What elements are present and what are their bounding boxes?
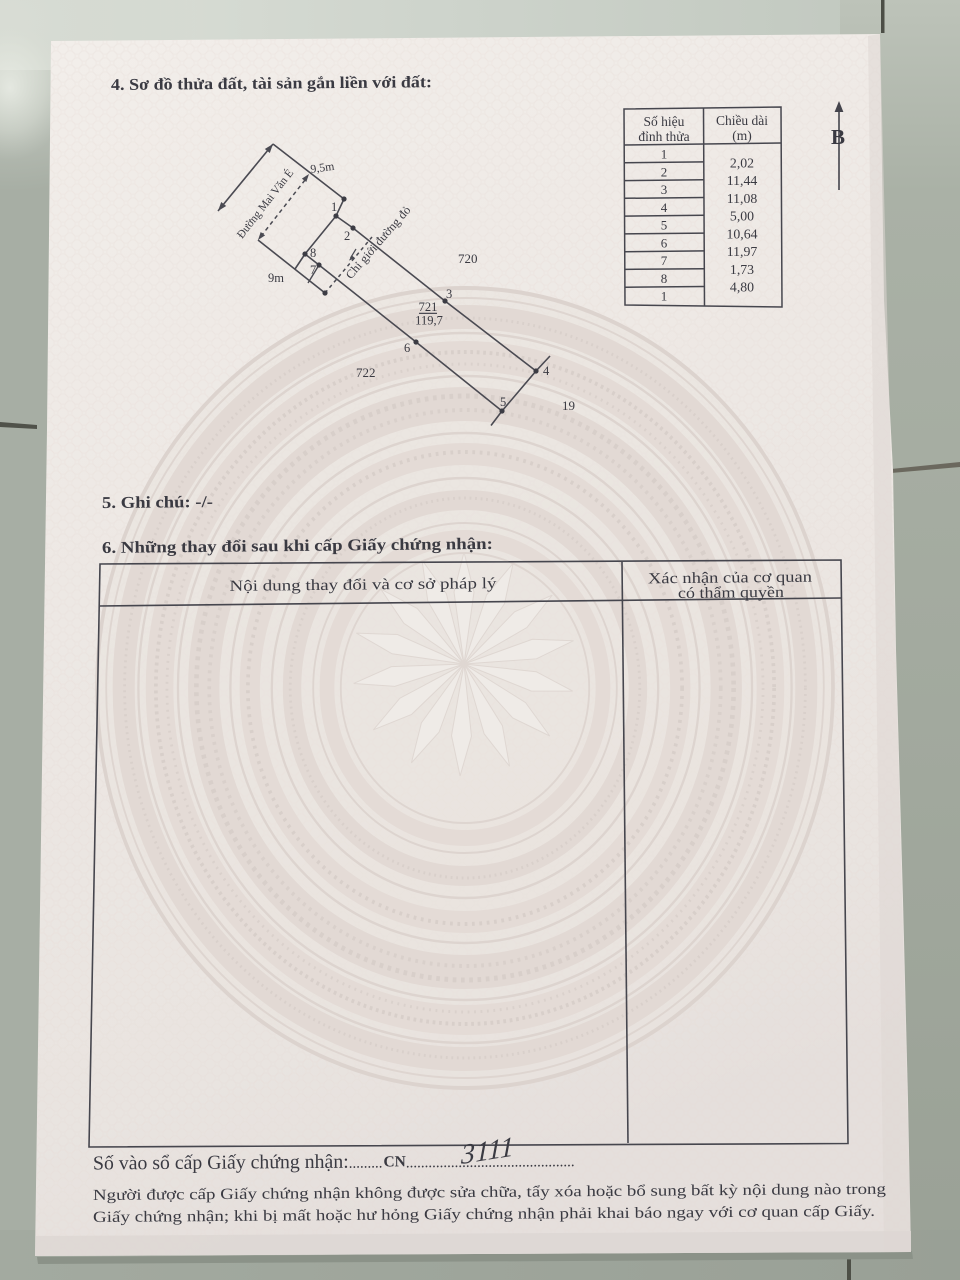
- svg-text:B: B: [831, 125, 845, 149]
- svg-text:6: 6: [661, 235, 668, 250]
- svg-text:10,64: 10,64: [726, 226, 757, 241]
- svg-text:721: 721: [419, 300, 438, 314]
- svg-text:7: 7: [310, 263, 316, 277]
- svg-text:đỉnh thửa: đỉnh thửa: [638, 129, 689, 144]
- svg-text:5: 5: [500, 395, 506, 409]
- svg-text:2: 2: [661, 164, 668, 179]
- svg-text:5: 5: [661, 218, 668, 233]
- svg-text:có thẩm quyền: có thẩm quyền: [678, 584, 784, 602]
- svg-text:2: 2: [344, 229, 350, 243]
- svg-text:9m: 9m: [268, 271, 284, 285]
- svg-text:2,02: 2,02: [730, 155, 754, 170]
- svg-text:11,08: 11,08: [727, 191, 758, 206]
- svg-text:11,97: 11,97: [727, 244, 758, 259]
- svg-text:722: 722: [356, 365, 376, 380]
- svg-text:11,44: 11,44: [727, 173, 758, 188]
- svg-text:3: 3: [446, 287, 452, 301]
- svg-text:1: 1: [661, 147, 668, 162]
- svg-text:5. Ghi chú: -/-: 5. Ghi chú: -/-: [102, 492, 213, 512]
- svg-text:1: 1: [661, 289, 668, 304]
- svg-text:6: 6: [404, 341, 410, 355]
- svg-text:8: 8: [310, 246, 316, 260]
- svg-text:720: 720: [458, 251, 478, 266]
- svg-text:8: 8: [661, 271, 668, 286]
- svg-text:4: 4: [543, 364, 550, 378]
- svg-text:7: 7: [661, 253, 668, 268]
- svg-text:1,73: 1,73: [730, 262, 754, 277]
- svg-text:1: 1: [331, 200, 337, 214]
- svg-text:119,7: 119,7: [415, 314, 443, 328]
- svg-text:4. Sơ đồ thửa đất, tài sản gắn: 4. Sơ đồ thửa đất, tài sản gắn liền với …: [111, 72, 432, 94]
- svg-text:3: 3: [661, 182, 668, 197]
- svg-text:Chiều dài: Chiều dài: [716, 113, 768, 128]
- svg-text:Nội dung thay đổi và cơ sở phá: Nội dung thay đổi và cơ sở pháp lý: [229, 575, 496, 595]
- svg-text:4: 4: [661, 200, 668, 215]
- svg-text:4,80: 4,80: [730, 280, 754, 295]
- svg-text:(m): (m): [732, 128, 752, 143]
- svg-text:Số hiệu: Số hiệu: [644, 114, 685, 129]
- svg-text:19: 19: [562, 398, 575, 413]
- svg-text:5,00: 5,00: [730, 209, 754, 224]
